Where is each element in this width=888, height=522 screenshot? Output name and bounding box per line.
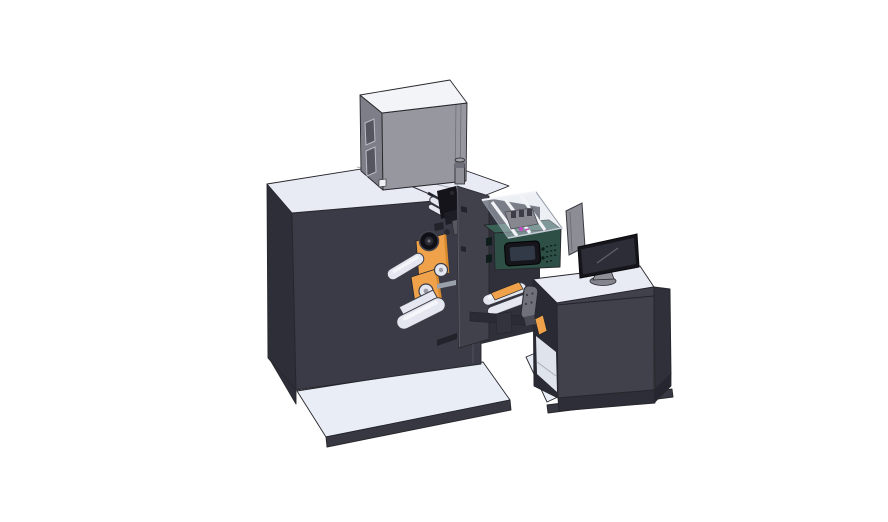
box-window-upper (365, 119, 375, 145)
module-bolt (541, 247, 544, 250)
beam-support (496, 312, 512, 334)
box-window-lower (366, 147, 376, 176)
magenta-component (519, 227, 523, 231)
operator-desk (526, 266, 673, 413)
module-bolt (541, 256, 544, 259)
module-latch (486, 254, 492, 263)
top-control-box (360, 80, 467, 190)
handle-foot (524, 315, 536, 326)
module-display (504, 241, 541, 266)
exhaust-cylinder (455, 158, 465, 184)
machine-render (0, 0, 888, 522)
box-corner-label (379, 179, 386, 187)
desk-right (654, 287, 671, 390)
module-latch (486, 237, 492, 246)
cad-render-stage (0, 0, 888, 522)
plate-cutout (461, 246, 466, 252)
